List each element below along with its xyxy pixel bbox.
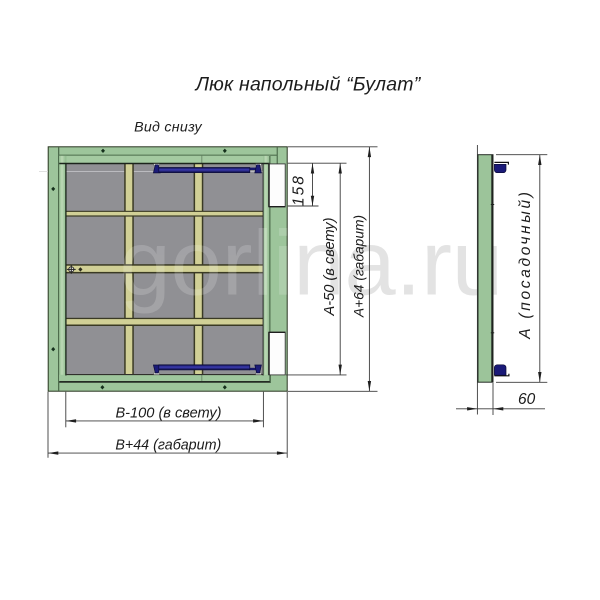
svg-text:158: 158 bbox=[291, 174, 308, 206]
svg-text:А-50 (в свету): А-50 (в свету) bbox=[322, 218, 338, 317]
svg-text:Вид снизу: Вид снизу bbox=[134, 119, 202, 135]
svg-text:60: 60 bbox=[518, 391, 536, 408]
svg-text:В-100 (в свету): В-100 (в свету) bbox=[115, 406, 221, 422]
svg-text:А (посадочный): А (посадочный) bbox=[517, 189, 534, 339]
svg-text:Люк напольный “Булат”: Люк напольный “Булат” bbox=[194, 73, 422, 95]
svg-text:В+44 (габарит): В+44 (габарит) bbox=[115, 437, 221, 453]
svg-text:А+64 (габарит): А+64 (габарит) bbox=[352, 215, 367, 318]
